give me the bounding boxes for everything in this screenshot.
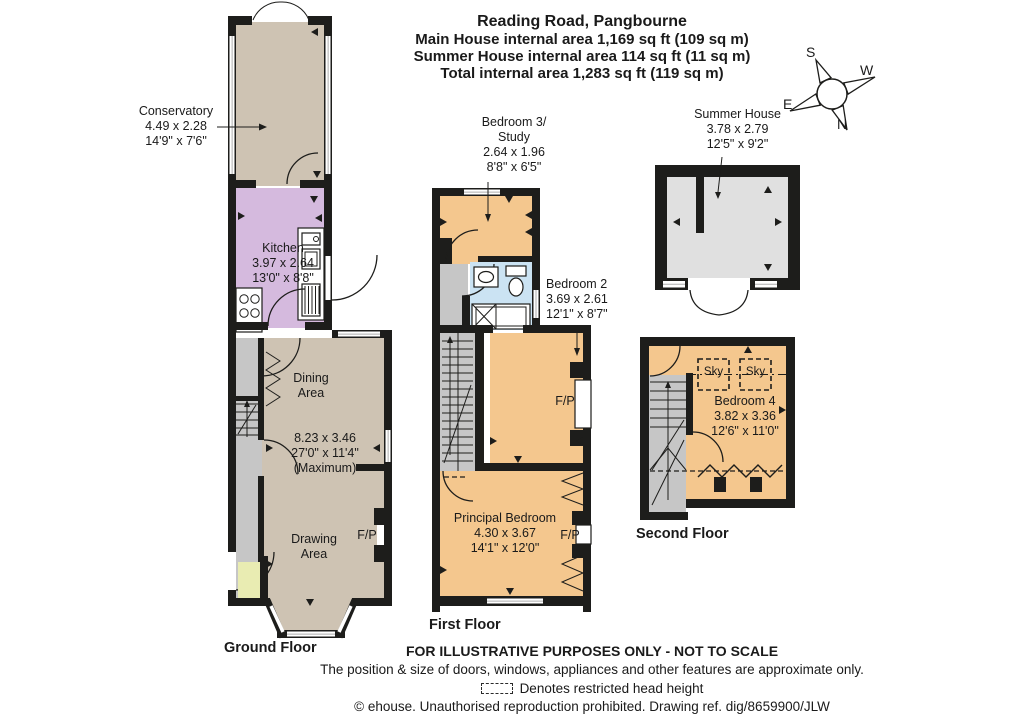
bedroom4-label: Bedroom 4 3.82 x 3.36 12'6" x 11'0" bbox=[688, 394, 802, 439]
principal-fireplace-label: F/P bbox=[554, 528, 586, 543]
reception-dimensions-label: 8.23 x 3.46 27'0" x 11'4" (Maximum) bbox=[272, 431, 378, 476]
drawing-area-label: Drawing Area bbox=[284, 532, 344, 562]
kitchen-label: Kitchen 3.97 x 2.64 13'0" x 8'8" bbox=[237, 241, 329, 286]
toilet bbox=[506, 266, 526, 276]
dining-area-label: Dining Area bbox=[281, 371, 341, 401]
side-door-arc bbox=[332, 255, 377, 300]
porch bbox=[238, 562, 260, 600]
garden-door-arc bbox=[253, 2, 281, 20]
summer-house-label: Summer House 3.78 x 2.79 12'5" x 9'2" bbox=[680, 107, 795, 152]
ground-floor-plan bbox=[215, 0, 415, 665]
compass-north: N bbox=[837, 116, 847, 132]
footer-disclaimer: FOR ILLUSTRATIVE PURPOSES ONLY - NOT TO … bbox=[162, 643, 1022, 659]
compass-south: S bbox=[806, 44, 815, 60]
footer-approximate-note: The position & size of doors, windows, a… bbox=[162, 662, 1022, 677]
bathroom bbox=[440, 262, 539, 333]
footer-head-height-note: Denotes restricted head height bbox=[162, 681, 1022, 696]
skylight2-label: Sky bbox=[741, 366, 770, 378]
summer-door-arc bbox=[690, 290, 719, 315]
first-floor-stairs bbox=[440, 333, 484, 471]
restricted-head-height-icon bbox=[481, 683, 513, 694]
summer-house-plan bbox=[645, 155, 810, 320]
first-floor-label: First Floor bbox=[429, 617, 501, 633]
skylight1-label: Sky bbox=[699, 366, 728, 378]
compass-west: W bbox=[860, 62, 873, 78]
compass-rose-icon bbox=[780, 30, 910, 160]
bay-window bbox=[267, 598, 355, 638]
floorplan-page: Reading Road, Pangbourne Main House inte… bbox=[0, 0, 1024, 724]
footer-copyright: © ehouse. Unauthorised reproduction proh… bbox=[162, 699, 1022, 714]
second-floor-label: Second Floor bbox=[636, 526, 729, 542]
bedroom2-label: Bedroom 2 3.69 x 2.61 12'1" x 8'7" bbox=[546, 277, 646, 322]
bedroom2-fireplace-label: F/P bbox=[548, 394, 582, 409]
partition-wall bbox=[696, 177, 704, 233]
conservatory-label: Conservatory 4.49 x 2.28 14'9" x 7'6" bbox=[118, 104, 234, 149]
ground-fireplace-label: F/P bbox=[351, 528, 383, 543]
principal-bedroom-label: Principal Bedroom 4.30 x 3.67 14'1" x 12… bbox=[438, 511, 572, 556]
bedroom3-label: Bedroom 3/ Study 2.64 x 1.96 8'8" x 6'5" bbox=[450, 115, 578, 175]
garden-door-arc bbox=[281, 2, 309, 20]
summer-door-arc bbox=[719, 290, 748, 315]
bedroom3-room bbox=[440, 196, 532, 264]
